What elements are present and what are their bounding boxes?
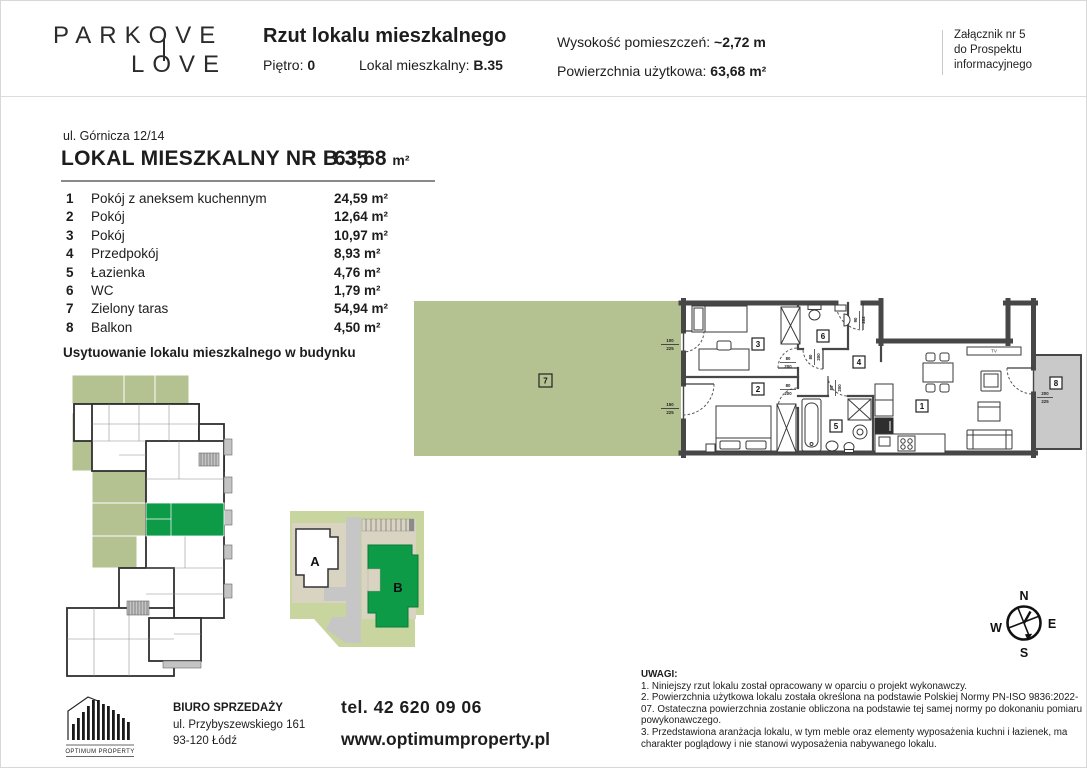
compass-west: W xyxy=(990,621,1002,635)
header-rule xyxy=(1,96,1087,97)
logo-text: OPTIMUM PROPERTY xyxy=(65,749,134,755)
office-address2: 93-120 Łódź xyxy=(173,733,305,750)
balcony-area xyxy=(1033,355,1081,449)
svg-text:200: 200 xyxy=(784,391,792,396)
svg-text:225: 225 xyxy=(666,346,674,351)
spec-height: Wysokość pomieszczeń: ~2,72 m xyxy=(557,28,766,57)
note-item: 2. Powierzchnia użytkowa lokalu została … xyxy=(641,692,1087,727)
svg-text:90: 90 xyxy=(853,317,858,322)
building-b-label: B xyxy=(393,580,402,595)
header-specs: Wysokość pomieszczeń: ~2,72 m Powierzchn… xyxy=(557,28,766,86)
optimum-property-logo: OPTIMUM PROPERTY xyxy=(65,694,141,760)
compass-south: S xyxy=(1020,646,1028,660)
floor-label: Piętro: xyxy=(263,57,307,73)
website-url: www.optimumproperty.pl xyxy=(341,729,550,750)
logo-connector xyxy=(163,39,165,61)
sales-office-block: BIURO SPRZEDAŻY ul. Przybyszewskiego 161… xyxy=(173,700,305,750)
logo-bars xyxy=(72,700,130,740)
svg-text:200: 200 xyxy=(784,364,792,369)
site-plan: A B xyxy=(276,499,438,663)
building-location-plan xyxy=(59,369,249,696)
highlighted-unit xyxy=(146,503,224,536)
table-row: 6WC1,79 m² xyxy=(63,283,435,301)
compass-rose: N E S W xyxy=(986,584,1066,662)
compass-east: E xyxy=(1048,617,1056,631)
table-row: 8Balkon4,50 m² xyxy=(63,320,435,338)
tv-label: TV xyxy=(991,349,997,354)
svg-text:225: 225 xyxy=(1041,399,1049,404)
svg-text:225: 225 xyxy=(666,410,674,415)
svg-text:80: 80 xyxy=(808,354,813,359)
unit-title-rule xyxy=(61,180,435,182)
table-row: 5Łazienka4,76 m² xyxy=(63,265,435,283)
unit-value: B.35 xyxy=(473,57,503,73)
table-row: 2Pokój12,64 m² xyxy=(63,209,435,227)
svg-text:100: 100 xyxy=(666,338,674,343)
label-room8: 8 xyxy=(1054,379,1059,388)
room-list: 1Pokój z aneksem kuchennym24,59 m² 2Pokó… xyxy=(63,191,435,338)
note-item: 1. Niniejszy rzut lokalu został opracowa… xyxy=(641,681,1087,693)
header-divider xyxy=(942,30,943,75)
compass-north: N xyxy=(1019,589,1028,603)
parking-strip xyxy=(362,519,414,531)
office-label: BIURO SPRZEDAŻY xyxy=(173,700,305,717)
label-room3: 3 xyxy=(756,340,761,349)
label-room7: 7 xyxy=(543,377,548,386)
svg-text:80: 80 xyxy=(829,385,834,390)
notes-section: UWAGI: 1. Niniejszy rzut lokalu został o… xyxy=(641,669,1087,750)
spec-area: Powierzchnia użytkowa: 63,68 m² xyxy=(557,57,766,86)
floor-plan-document: PARKOVE LOVE Rzut lokalu mieszkalnego Pi… xyxy=(0,0,1087,768)
unit-title: LOKAL MIESZKALNY NR B.35 xyxy=(61,147,368,171)
table-row: 3Pokój10,97 m² xyxy=(63,228,435,246)
label-room1: 1 xyxy=(920,402,925,411)
location-section-title: Usytuowanie lokalu mieszkalnego w budynk… xyxy=(63,345,356,360)
attachment-note: Załącznik nr 5 do Prospektu informacyjne… xyxy=(954,28,1032,73)
svg-text:200: 200 xyxy=(837,384,842,392)
office-address1: ul. Przybyszewskiego 161 xyxy=(173,717,305,734)
notes-heading: UWAGI: xyxy=(641,669,1087,681)
street-address: ul. Górnicza 12/14 xyxy=(63,129,164,143)
table-row: 4Przedpokój8,93 m² xyxy=(63,246,435,264)
label-room2: 2 xyxy=(756,385,761,394)
floor-value: 0 xyxy=(307,57,315,73)
bedroom2-furniture xyxy=(706,404,796,452)
page-title: Rzut lokalu mieszkalnego xyxy=(263,25,506,48)
label-room5: 5 xyxy=(834,422,839,431)
parkove-love-logo: PARKOVE LOVE xyxy=(53,21,227,79)
header-meta: Piętro: 0 Lokal mieszkalny: B.35 xyxy=(263,57,315,73)
building-a-label: A xyxy=(310,554,320,569)
label-room4: 4 xyxy=(857,358,862,367)
label-room6: 6 xyxy=(821,332,826,341)
note-item: 3. Przedstawiona aranżacja lokalu, w tym… xyxy=(641,727,1087,750)
svg-text:80: 80 xyxy=(786,383,791,388)
unit-total-area: 63,68 m² xyxy=(334,147,410,171)
table-row: 1Pokój z aneksem kuchennym24,59 m² xyxy=(63,191,435,209)
unit-label: Lokal mieszkalny: xyxy=(359,57,473,73)
logo-line2: LOVE xyxy=(131,50,227,79)
phone-number: tel. 42 620 09 06 xyxy=(341,697,482,718)
svg-text:200: 200 xyxy=(816,353,821,361)
apartment-plan: TV 7 3 2 6 4 5 1 8 xyxy=(411,296,1087,469)
logo-line1: PARKOVE xyxy=(53,21,227,50)
svg-text:80: 80 xyxy=(786,356,791,361)
svg-text:200: 200 xyxy=(1041,391,1049,396)
table-row: 7Zielony taras54,94 m² xyxy=(63,301,435,319)
svg-text:150: 150 xyxy=(666,402,674,407)
svg-text:202: 202 xyxy=(861,316,866,324)
